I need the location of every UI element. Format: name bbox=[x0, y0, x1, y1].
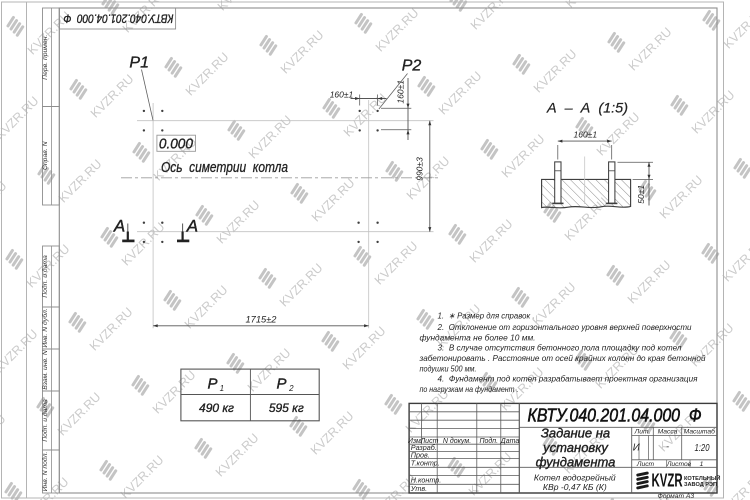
svg-text:КВр -0,47 КБ (К): КВр -0,47 КБ (К) bbox=[543, 482, 607, 492]
svg-text:KVZR.RU: KVZR.RU bbox=[594, 110, 643, 159]
svg-text:1:20: 1:20 bbox=[695, 443, 710, 454]
svg-text:N докум.: N докум. bbox=[443, 437, 471, 445]
svg-text:2: 2 bbox=[288, 384, 294, 393]
svg-text:KVZR.RU: KVZR.RU bbox=[213, 431, 262, 480]
svg-text:А: А bbox=[186, 217, 198, 236]
svg-text:1: 1 bbox=[700, 461, 704, 468]
svg-text:595 кг: 595 кг bbox=[269, 401, 304, 415]
svg-text:Дата: Дата bbox=[500, 438, 520, 445]
svg-text:Подп.: Подп. bbox=[479, 437, 498, 445]
svg-text:1: 1 bbox=[220, 384, 224, 393]
svg-text:KVZR.RU: KVZR.RU bbox=[467, 217, 516, 266]
svg-text:KVZR.RU: KVZR.RU bbox=[183, 50, 232, 99]
svg-text:KVZR.RU: KVZR.RU bbox=[689, 88, 738, 137]
svg-text:KVZR.RU: KVZR.RU bbox=[373, 6, 422, 55]
svg-text:Инв. N дубл.: Инв. N дубл. bbox=[41, 308, 49, 347]
svg-text:Перв. примен.: Перв. примен. bbox=[42, 35, 49, 80]
svg-text:KVZR.RU: KVZR.RU bbox=[278, 28, 327, 77]
svg-text:1715±2: 1715±2 bbox=[246, 315, 278, 325]
svg-text:KVZR: KVZR bbox=[652, 471, 683, 491]
svg-text:Формат А3: Формат А3 bbox=[658, 493, 695, 500]
svg-text:Лит.: Лит. bbox=[634, 429, 651, 436]
svg-text:KVZR.RU: KVZR.RU bbox=[309, 176, 358, 225]
svg-text:0.000: 0.000 bbox=[159, 136, 194, 153]
svg-text:забетонировать . Расстояние от: забетонировать . Расстояние от осей край… bbox=[419, 353, 706, 363]
svg-text:KVZR.RU: KVZR.RU bbox=[308, 409, 357, 458]
svg-text:KVZR.RU: KVZR.RU bbox=[340, 324, 389, 373]
svg-text:Утв.: Утв. bbox=[410, 484, 427, 493]
svg-text:Листов: Листов bbox=[666, 461, 692, 468]
svg-text:Масса: Масса bbox=[658, 429, 678, 436]
svg-text:KVZR.RU: KVZR.RU bbox=[436, 69, 485, 118]
svg-text:KVZR.RU: KVZR.RU bbox=[0, 327, 41, 376]
svg-text:KVZR.RU: KVZR.RU bbox=[55, 390, 104, 439]
svg-text:КВТУ.040.201.04.000 Ф: КВТУ.040.201.04.000 Ф bbox=[528, 406, 702, 426]
svg-text:KVZR.RU: KVZR.RU bbox=[721, 3, 750, 52]
svg-text:KVZR.RU: KVZR.RU bbox=[246, 113, 295, 162]
svg-text:Задание на: Задание на bbox=[541, 425, 610, 440]
svg-text:KVZR.RU: KVZR.RU bbox=[499, 132, 548, 181]
svg-text:Котел водогрейный: Котел водогрейный bbox=[534, 472, 616, 482]
svg-text:1. ∗ Размер для справок .: 1. ∗ Размер для справок . bbox=[438, 311, 535, 321]
svg-text:Лист: Лист bbox=[636, 461, 655, 468]
svg-text:фундамента не более 10 мм.: фундамента не более 10 мм. bbox=[420, 332, 536, 342]
svg-text:Р: Р bbox=[276, 376, 286, 393]
svg-text:160±1: 160±1 bbox=[574, 130, 598, 140]
svg-text:-: - bbox=[666, 441, 669, 451]
svg-text:KVZR.RU: KVZR.RU bbox=[88, 72, 137, 121]
svg-text:Инв. N подл.: Инв. N подл. bbox=[41, 452, 49, 492]
svg-text:KVZR.RU: KVZR.RU bbox=[372, 239, 421, 288]
svg-text:KVZR.RU: KVZR.RU bbox=[466, 450, 515, 499]
svg-text:160±1: 160±1 bbox=[330, 89, 354, 99]
svg-text:Р: Р bbox=[207, 376, 217, 393]
svg-text:KVZR.RU: KVZR.RU bbox=[626, 25, 675, 74]
svg-text:Взам. инв. N: Взам. инв. N bbox=[42, 350, 49, 390]
svg-text:KVZR.RU: KVZR.RU bbox=[657, 173, 706, 222]
svg-text:по нагрузкам на фундамент .: по нагрузкам на фундамент . bbox=[420, 384, 519, 394]
svg-text:Ось симетрии котла: Ось симетрии котла bbox=[161, 160, 288, 176]
svg-text:KVZR.RU: KVZR.RU bbox=[277, 261, 326, 310]
svg-text:160±1: 160±1 bbox=[395, 80, 405, 104]
svg-text:KVZR.RU: KVZR.RU bbox=[531, 47, 580, 96]
svg-text:КВТУ.040.201.04.000 Ф: КВТУ.040.201.04.000 Ф bbox=[63, 12, 173, 26]
svg-text:Подп. и дата: Подп. и дата bbox=[41, 255, 49, 298]
svg-text:KVZR.RU: KVZR.RU bbox=[720, 236, 750, 285]
svg-text:KVZR.RU: KVZR.RU bbox=[119, 220, 168, 269]
svg-text:KVZR.RU: KVZR.RU bbox=[214, 198, 263, 247]
svg-text:Р2: Р2 bbox=[402, 58, 422, 75]
svg-text:KVZR.RU: KVZR.RU bbox=[87, 305, 136, 354]
svg-text:фундамента: фундамента bbox=[536, 454, 616, 469]
svg-text:И: И bbox=[633, 443, 641, 454]
svg-text:KVZR.RU: KVZR.RU bbox=[468, 0, 517, 33]
svg-text:КОТЕЛЬНЫЙ: КОТЕЛЬНЫЙ bbox=[684, 474, 720, 482]
svg-text:Масштаб: Масштаб bbox=[684, 428, 715, 436]
svg-text:KVZR.RU: KVZR.RU bbox=[56, 157, 105, 206]
svg-text:Т.контр.: Т.контр. bbox=[411, 458, 440, 467]
svg-text:KVZR.RU: KVZR.RU bbox=[150, 368, 199, 417]
svg-text:Справ. N: Справ. N bbox=[42, 141, 49, 170]
svg-text:2. Отклонение от горизонтальн: 2. Отклонение от горизонтального уровня … bbox=[437, 322, 692, 332]
svg-text:Подп. и дата: Подп. и дата bbox=[41, 399, 49, 442]
svg-text:KVZR.RU: KVZR.RU bbox=[0, 94, 42, 143]
svg-text:установку: установку bbox=[542, 440, 609, 455]
svg-text:990±3: 990±3 bbox=[414, 157, 424, 181]
svg-text:А – А (1:5): А – А (1:5) bbox=[546, 101, 628, 117]
svg-text:подушки 500 мм.: подушки 500 мм. bbox=[420, 363, 477, 373]
svg-text:KVZR.RU: KVZR.RU bbox=[625, 258, 674, 307]
svg-text:Р1: Р1 bbox=[129, 55, 149, 72]
svg-text:4. Фундамент под котел разраб: 4. Фундамент под котел разрабатывает про… bbox=[438, 374, 699, 384]
svg-text:490 кг: 490 кг bbox=[199, 401, 234, 415]
svg-text:3. В случае отсутствия бетонн: 3. В случае отсутствия бетонного пола пл… bbox=[438, 343, 682, 353]
svg-text:50±1: 50±1 bbox=[636, 185, 646, 204]
svg-text:А: А bbox=[113, 217, 125, 236]
svg-text:KVZR.RU: KVZR.RU bbox=[182, 283, 231, 332]
svg-text:ЗАВОД РЭП: ЗАВОД РЭП bbox=[684, 482, 717, 488]
